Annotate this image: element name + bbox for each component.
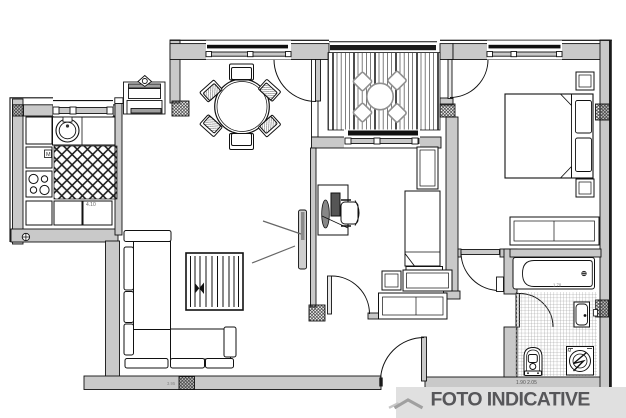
svg-text:1.90 2.05: 1.90 2.05 bbox=[516, 380, 537, 386]
svg-text:1.70: 1.70 bbox=[553, 283, 562, 288]
svg-text:3.95: 3.95 bbox=[167, 381, 176, 386]
svg-text:FOTO INDICATIVE: FOTO INDICATIVE bbox=[431, 389, 591, 411]
svg-text:4.10: 4.10 bbox=[86, 202, 96, 208]
svg-text:M: M bbox=[568, 348, 572, 353]
svg-text:M: M bbox=[46, 152, 51, 158]
